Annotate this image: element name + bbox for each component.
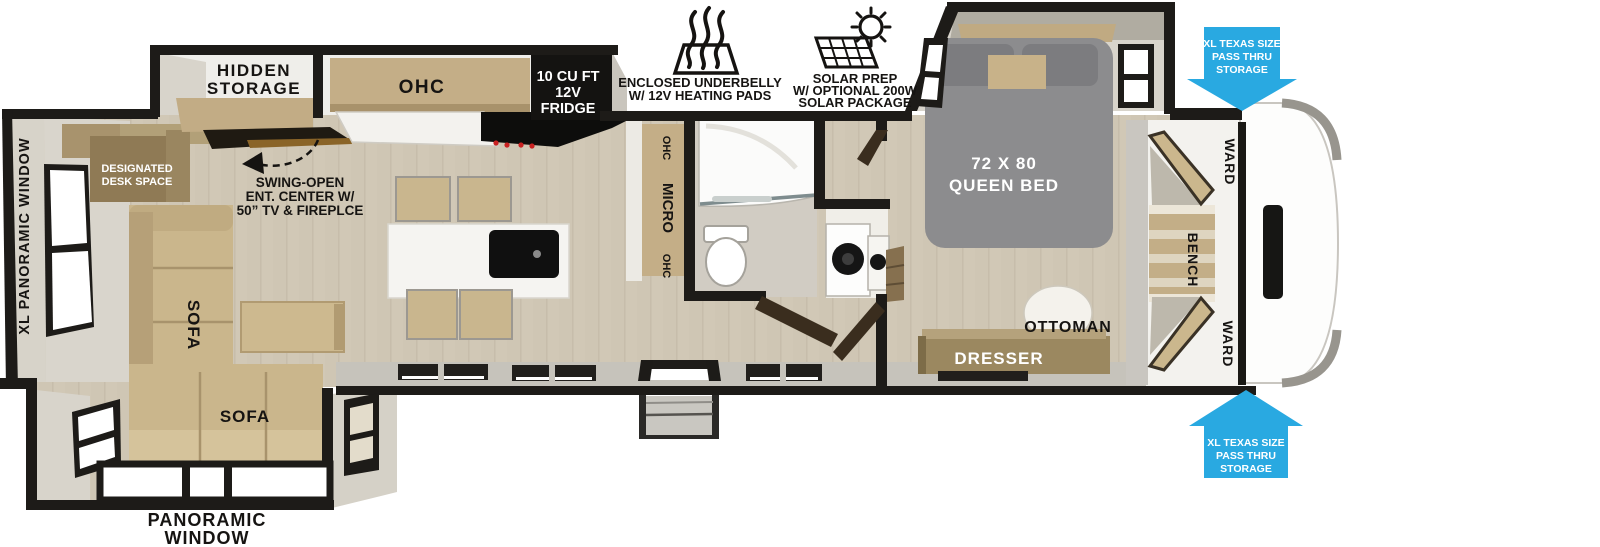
- svg-text:OHC: OHC: [660, 136, 672, 161]
- svg-text:QUEEN BED: QUEEN BED: [949, 176, 1059, 195]
- svg-text:PANORAMIC: PANORAMIC: [148, 510, 267, 530]
- svg-text:MICRO: MICRO: [659, 183, 676, 233]
- svg-text:XL TEXAS SIZE: XL TEXAS SIZE: [1207, 437, 1284, 449]
- svg-text:DESIGNATED: DESIGNATED: [101, 163, 172, 175]
- svg-text:10 CU FT: 10 CU FT: [537, 69, 600, 85]
- svg-text:OHC: OHC: [399, 77, 446, 98]
- svg-text:FRIDGE: FRIDGE: [541, 101, 596, 117]
- svg-text:PASS THRU: PASS THRU: [1212, 51, 1272, 63]
- svg-text:STORAGE: STORAGE: [1220, 463, 1272, 475]
- svg-text:WARD: WARD: [1222, 139, 1238, 186]
- svg-text:WARD: WARD: [1220, 321, 1236, 368]
- svg-text:SOFA: SOFA: [184, 300, 203, 350]
- svg-text:DRESSER: DRESSER: [954, 349, 1043, 368]
- svg-text:ENT. CENTER W/: ENT. CENTER W/: [246, 189, 355, 204]
- svg-text:STORAGE: STORAGE: [1216, 64, 1268, 76]
- svg-text:72 X 80: 72 X 80: [971, 154, 1037, 173]
- svg-text:12V: 12V: [555, 85, 581, 101]
- svg-text:OHC: OHC: [660, 254, 672, 279]
- svg-text:PASS THRU: PASS THRU: [1216, 450, 1276, 462]
- svg-text:SOLAR PACKAGE: SOLAR PACKAGE: [798, 95, 911, 110]
- svg-text:SWING-OPEN: SWING-OPEN: [256, 175, 345, 190]
- svg-text:50” TV & FIREPLCE: 50” TV & FIREPLCE: [237, 203, 364, 218]
- svg-text:XL PANORAMIC WINDOW: XL PANORAMIC WINDOW: [17, 137, 33, 334]
- svg-text:HIDDEN: HIDDEN: [217, 61, 291, 80]
- svg-text:SOFA: SOFA: [220, 407, 270, 426]
- svg-text:XL TEXAS SIZE: XL TEXAS SIZE: [1203, 38, 1280, 50]
- svg-text:WINDOW: WINDOW: [165, 528, 250, 547]
- svg-text:OTTOMAN: OTTOMAN: [1024, 319, 1112, 336]
- svg-text:DESK SPACE: DESK SPACE: [102, 176, 173, 188]
- svg-text:W/ 12V HEATING PADS: W/ 12V HEATING PADS: [629, 88, 772, 103]
- svg-text:BENCH: BENCH: [1185, 233, 1201, 288]
- svg-text:STORAGE: STORAGE: [207, 79, 301, 98]
